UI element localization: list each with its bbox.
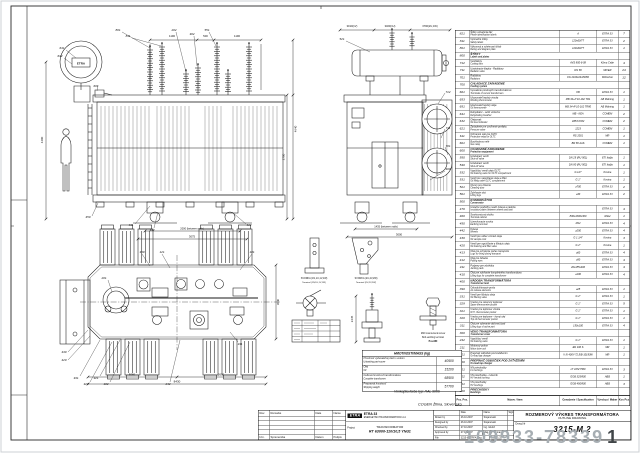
- part-desc: Otvory pre čistenieCleaning door: [469, 184, 559, 191]
- parts-row: 410Oká pre zdvíhanie kompletného transfo…: [456, 271, 630, 278]
- part-pos: 450: [456, 220, 470, 227]
- part-desc: Vypúšťací ventilOil draining valve: [469, 337, 559, 344]
- part-desc: Izolačné podložky medzi kolesá a nádobuI…: [469, 206, 559, 213]
- part-qty: 1: [619, 45, 630, 52]
- terminal-detail-1: [310, 238, 319, 268]
- part-qty: 4: [619, 257, 630, 264]
- drawing-label: 2445: [350, 315, 354, 322]
- parts-row: 211Motorový pohonMotor drive unitED 100 …: [456, 344, 630, 351]
- drawing-label: 3000: [396, 233, 403, 237]
- parts-section-row: 400NÁDOBA TRANSFORMÁTORATransformer tank: [456, 279, 630, 286]
- part-desc: Ventil pre odber vzoriek olejaOil sample…: [469, 235, 559, 242]
- drawing-label: 601: [93, 84, 98, 88]
- part-pos: 470: [456, 206, 470, 213]
- customer-wrap: COGEN Žilina, Slovensko: [418, 402, 498, 407]
- part-spec: ⌀700: [560, 184, 597, 191]
- drawing-label: 3075: [189, 235, 196, 239]
- terminal-detail-2: [352, 238, 378, 264]
- front-view: [60, 41, 285, 223]
- part-maker: ETRA 33: [597, 38, 619, 45]
- part-desc: VEKO TRANSFORMÁTORATransformer cover: [469, 330, 618, 337]
- part-spec: KB: [560, 89, 597, 96]
- part-spec: G 2": [560, 242, 597, 249]
- part-maker: COMEM: [597, 125, 619, 132]
- part-maker: ETRA 33: [597, 286, 619, 293]
- part-qty: 1: [619, 286, 630, 293]
- drawing-label: 711: [446, 126, 451, 130]
- part-pos: 641: [456, 111, 470, 118]
- drawing-label: 101: [249, 250, 254, 254]
- part-qty: 2: [619, 38, 630, 45]
- tank-cover-beam: [93, 95, 285, 102]
- parts-row: 470Izolačné podložky medzi kolesá a nádo…: [456, 206, 630, 213]
- part-qty: 1: [619, 176, 630, 183]
- drawing-label: 500: [203, 34, 208, 38]
- drawing-label: 329: [83, 382, 88, 386]
- conservator-plan: [60, 280, 90, 344]
- part-pos: 653: [456, 96, 470, 103]
- weight-value: 15200: [437, 366, 462, 374]
- human-figure: [61, 136, 71, 191]
- part-desc: Ventil pre vypúšťanie a filtráciu olejaO…: [469, 242, 559, 249]
- part-desc: Oká pre zdvíhanie kompletného transformá…: [469, 271, 559, 278]
- part-pos: 540: [456, 162, 470, 169]
- part-pos: 701: [456, 74, 470, 81]
- part-maker: ETRA 33: [597, 31, 619, 38]
- part-maker: ETRA 33: [597, 220, 619, 227]
- part-desc: VN priechodkyHV bushings: [469, 381, 559, 388]
- drawing-label: 1435 (between rails): [374, 225, 398, 229]
- company-subname: ENERGETSKI TRANSFORMATORJI d.d.: [364, 416, 406, 418]
- part-pos: 390: [456, 286, 470, 293]
- part-spec: ⌀250: [560, 228, 597, 235]
- part-qty: 1: [619, 155, 630, 162]
- part-desc: Odvzdušňovacie prvkyAir release elements: [469, 286, 559, 293]
- drawing-label: M20 countersunk screw: [421, 332, 446, 335]
- drawing-label: Pos.680: [429, 341, 438, 343]
- part-maker: ETRA 33: [597, 322, 619, 329]
- part-desc: Výstražné štítkySafety labels: [469, 38, 559, 45]
- header-qty: Kos Pcs: [619, 396, 630, 406]
- part-desc: Motorový pohonMotor drive unit: [469, 344, 559, 351]
- part-qty: 3: [619, 366, 630, 373]
- part-desc: KolesáWheels: [469, 228, 559, 235]
- earthing-bolt-detail: [426, 298, 440, 306]
- part-qty: [619, 52, 630, 59]
- part-pos: 400: [456, 279, 470, 286]
- conservator-tank: [352, 50, 442, 76]
- part-spec: RS 2001: [560, 133, 597, 140]
- part-desc: Výkonový a schémový štítokRating and dia…: [469, 45, 559, 52]
- part-spec: G 1": [560, 176, 597, 183]
- drawing-label: 701: [445, 144, 450, 148]
- part-qty: 4: [619, 228, 630, 235]
- drawing-label: 311: [238, 342, 243, 346]
- drawing-label: 302: [189, 32, 194, 36]
- part-pos: 651: [456, 103, 470, 110]
- part-qty: 1: [619, 96, 630, 103]
- drawing-label: 321: [93, 376, 98, 380]
- part-pos: 410: [456, 271, 470, 278]
- parts-row: 540Uzatvárací ventilShut-off valveDN 80 …: [456, 162, 630, 169]
- part-pos: 521: [456, 184, 470, 191]
- part-pos: 242: [456, 337, 470, 344]
- drawing-label: Terminal (2U,2V,2W): [356, 281, 376, 284]
- part-spec: ⌀100: [560, 271, 597, 278]
- parts-row: 412Oká pre ťahaniePulling eyes⌀50ETRA 33…: [456, 257, 630, 264]
- drawing-label: 1190: [169, 34, 175, 38]
- part-qty: 1: [619, 308, 630, 315]
- drawing-label: 3190(1V): [347, 24, 358, 28]
- drawing-label: 712: [445, 90, 450, 94]
- part-spec: [560, 206, 597, 213]
- parts-list-table: 821Štítky označenia fázPhase identificat…: [455, 30, 631, 406]
- part-maker: MR: [597, 133, 619, 140]
- leader-lines: [64, 32, 448, 382]
- header-maker: Výrobca / Maker: [597, 396, 619, 406]
- part-spec: G 1": [560, 337, 597, 344]
- part-qty: 7: [619, 31, 630, 38]
- part-qty: 12: [619, 74, 630, 81]
- parts-row: 442KolesáWheels⌀250ETRA 334: [456, 228, 630, 235]
- weight-label: Celková hmotnosť transformátoraComplete …: [363, 374, 437, 382]
- drawing-label: 420: [61, 358, 66, 362]
- parts-row: 311Oká pre vyberanie aktívnej častiLifti…: [456, 322, 630, 329]
- parts-row: 711Uzatváracie klapky - RadiátoryRadiato…: [456, 67, 630, 74]
- weight-label: Hmotnosť vyberateľnej časti s vekomUntan…: [363, 357, 437, 365]
- parts-row: 811Výstražné štítkySafety labels120x60/7…: [456, 38, 630, 45]
- part-pos: 501: [456, 191, 470, 198]
- part-spec: 800x1000x300: [560, 213, 597, 220]
- paint-note-wrap: Vonkajšia farba typ: RAL 9006: [394, 390, 484, 394]
- part-qty: [619, 82, 630, 89]
- part-pos: 320: [456, 315, 470, 322]
- part-maker: Wiktscher: [597, 74, 619, 81]
- part-desc: ŠTÍTKYLabels and plates: [469, 52, 618, 59]
- part-spec: BR 80 AAS: [560, 140, 597, 147]
- part-pos: 801: [456, 45, 470, 52]
- drawing-label: 632: [57, 54, 62, 58]
- part-spec: G 1": [560, 308, 597, 315]
- part-desc: Dehydrátor - sušič vzduchuDehydrating br…: [469, 111, 559, 118]
- part-pos: 420: [456, 242, 470, 249]
- part-qty: 1: [619, 103, 630, 110]
- part-qty: 2: [619, 184, 630, 191]
- part-spec: ED 100 S: [560, 344, 597, 351]
- part-desc: VentilátoryCooling fans: [469, 60, 559, 67]
- part-qty: 2: [619, 111, 630, 118]
- part-qty: 2: [619, 118, 630, 125]
- part-desc: Vrecko pre rezervný teplomerSpare thermo…: [469, 300, 559, 307]
- drawing-label: 2000 (between rails): [180, 227, 204, 231]
- izm-col: Izm.: [259, 435, 270, 441]
- part-qty: [619, 147, 630, 154]
- part-spec: 20x185x400: [560, 264, 597, 271]
- drawing-label: SVORKA (1N,1U,1V,1W): [301, 277, 328, 280]
- drawing-label: ETRA: [77, 62, 86, 66]
- part-desc: Vyvedenie prúdových transformátorovTermi…: [469, 89, 559, 96]
- part-pos: 821: [456, 31, 470, 38]
- drawing-label: 121: [159, 250, 164, 254]
- part-pos: 460: [456, 213, 470, 220]
- part-qty: 4: [619, 206, 630, 213]
- part-spec: LB53 KOM: [560, 118, 597, 125]
- parts-row: 102VN priechodka - nulovníkHV neutral bu…: [456, 373, 630, 380]
- part-qty: 3: [619, 381, 630, 388]
- part-desc: Vrecko pre teplomer vinutiaW.Ti. thermom…: [469, 308, 559, 315]
- part-pos: 711: [456, 67, 470, 74]
- parts-row: 621Zariadenie pre uvoľnenie pretlakuPres…: [456, 125, 630, 132]
- ladder: [88, 104, 92, 195]
- part-qty: 24: [619, 67, 630, 74]
- part-maker: ETRA 33: [597, 337, 619, 344]
- drawing-label: 2700: [282, 153, 286, 160]
- parts-section-row: 600OCHRANNÉ ZARIADENIEProtection equipme…: [456, 147, 630, 154]
- parts-row: 641Dehydrátor - sušič vzduchuDehydrating…: [456, 111, 630, 118]
- weight-row: Hmotnosť vyberateľnej časti s vekomUntan…: [363, 357, 462, 366]
- part-qty: [619, 330, 630, 337]
- detail-views: [292, 238, 446, 342]
- part-spec: A: [560, 31, 597, 38]
- part-desc: Svorkovnicová skriňaTerminal cabinet: [469, 213, 559, 220]
- name-col: Name: [333, 411, 346, 417]
- part-pos: 700: [456, 82, 470, 89]
- part-desc: OlejoznakOil level indicator: [469, 118, 559, 125]
- drawing-label: 430: [61, 350, 66, 354]
- part-spec: MB - KEA: [560, 111, 597, 118]
- weight-label: OlejOil: [363, 366, 437, 374]
- project-label: Project: [347, 427, 355, 430]
- remarks-col: Remarks: [270, 411, 315, 417]
- part-spec: G 1/2": [560, 169, 597, 176]
- parts-row: 632OlejoznakOil level indicatorLB53 KOMC…: [456, 118, 630, 125]
- parts-row: 321Vrecko pre teplomer vinutiaW.Ti. ther…: [456, 308, 630, 315]
- part-pos: 430: [456, 235, 470, 242]
- part-maker: Rittal: [597, 213, 619, 220]
- drawing-label: 4640: [294, 125, 298, 132]
- part-qty: 4: [619, 264, 630, 271]
- part-maker: ETRA 33: [597, 249, 619, 256]
- parts-row: 801Výkonový a schémový štítokRating and …: [456, 45, 630, 52]
- part-spec: DN 80: [560, 67, 597, 74]
- part-desc: RadiátoryRadiators: [469, 74, 559, 81]
- drawing-label: SVORKA (2U,2V,2W): [355, 277, 378, 280]
- part-maker: ETRA 33: [597, 45, 619, 52]
- part-desc: Podpery pre zdvihákyJacking pads: [469, 264, 559, 271]
- drawing-label: 521: [339, 37, 344, 41]
- part-qty: 1: [619, 169, 630, 176]
- part-qty: 1: [619, 373, 630, 380]
- drawing-label: 450: [85, 215, 90, 219]
- part-pos: 413: [456, 249, 470, 256]
- part-pos: 712: [456, 60, 470, 67]
- drawing-label: 201: [100, 276, 106, 280]
- parts-row: 242Vypúšťací ventilOil draining valveG 1…: [456, 337, 630, 344]
- parts-row: 331Ventil pre filtráciu olejaOil filteri…: [456, 293, 630, 300]
- part-spec: G 2": [560, 293, 597, 300]
- part-desc: Ukazovateľ teploty olejaOil thermometer: [469, 103, 559, 110]
- part-spec: 1223: [560, 125, 597, 132]
- listing-id-watermark: 109933-783391: [464, 427, 619, 448]
- drawing-label: 811: [126, 34, 131, 38]
- part-qty: 4: [619, 249, 630, 256]
- drawing-label: 202: [170, 28, 176, 32]
- drawing-label: 460: [445, 167, 450, 171]
- part-spec: G 1": [560, 315, 597, 322]
- part-maker: ETRA 33: [597, 293, 619, 300]
- drawing-label: 551: [204, 28, 209, 32]
- weight-value: 68500: [437, 374, 462, 382]
- part-pos: 311: [456, 322, 470, 329]
- part-desc: PREPÍNAČ ODBOČIEK POD ZAŤAŽENÍMOn-load t…: [469, 359, 618, 366]
- part-maker: Kovina: [597, 242, 619, 249]
- part-desc: Oká pre vyberanie aktívnej častiLifting …: [469, 322, 559, 329]
- part-pos: 331: [456, 293, 470, 300]
- parts-row: 821Štítky označenia fázPhase identificat…: [456, 31, 630, 38]
- parts-row: 329Vrecko pre rezervný teplomerSpare the…: [456, 300, 630, 307]
- part-qty: 1: [619, 344, 630, 351]
- part-desc: Uzatvárací ventilShut-off valve: [469, 162, 559, 169]
- part-desc: Buchholzovo reléGas relay: [469, 140, 559, 147]
- part-maker: ETRA 33: [597, 264, 619, 271]
- parts-row: 320Vrecko pre teplomer - horný olejTop o…: [456, 315, 630, 322]
- part-spec: MB 34+P 10-162 TR80: [560, 103, 597, 110]
- part-qty: [619, 279, 630, 286]
- parts-row: 430Ventil pre odber vzoriek olejaOil sam…: [456, 235, 630, 242]
- part-qty: 1: [619, 133, 630, 140]
- part-qty: 2: [619, 191, 630, 198]
- part-pos: 800: [456, 52, 470, 59]
- part-maker: AB Mätning: [597, 96, 619, 103]
- customer-name: COGEN Žilina, Slovensko: [418, 402, 498, 407]
- parts-row: 653Ukazovateľ teploty vinutiaWinding the…: [456, 96, 630, 103]
- parts-row: 201Prepínač odbočiek pod zaťaženímOn-loa…: [456, 352, 630, 359]
- part-pos: 632: [456, 118, 470, 125]
- part-maker: MR: [597, 344, 619, 351]
- part-desc: Ukazovateľ teploty vinutiaWinding thermo…: [469, 96, 559, 103]
- parts-row: 390Odvzdušňovacie prvkyAir release eleme…: [456, 286, 630, 293]
- part-spec: FG 2100x24x80/80: [560, 74, 597, 81]
- part-desc: Štítky označenia fázPhase identification…: [469, 31, 559, 38]
- parts-section-row: 700CHLADIACE ZARIADENIECooling system: [456, 82, 630, 89]
- drawing-label: 390: [139, 250, 144, 254]
- part-pos: 601: [456, 140, 470, 147]
- part-desc: NÁDOBA TRANSFORMÁTORATransformer tank: [469, 279, 618, 286]
- part-spec: ⌀30: [560, 191, 597, 198]
- watermark-id: 109933-78339: [464, 427, 604, 447]
- part-qty: 4: [619, 271, 630, 278]
- part-pos: 811: [456, 38, 470, 45]
- parts-row: 413Oká pre uchytenie počas transportuLug…: [456, 249, 630, 256]
- part-maker: AB Mätning: [597, 103, 619, 110]
- drawing-label: 4400: [40, 136, 44, 143]
- part-maker: Klima Celje: [597, 60, 619, 67]
- part-desc: OCHRANNÉ ZARIADENIEProtection equipment: [469, 147, 618, 154]
- podpis-col: Podpis: [333, 435, 346, 441]
- part-pos: 532: [456, 169, 470, 176]
- parts-row: 532Vypúšťací ventil oleja OLTCOil draini…: [456, 169, 630, 176]
- part-pos: 321: [456, 308, 470, 315]
- part-maker: ETRA 33: [597, 89, 619, 96]
- parts-row: 420Ventil pre vypúšťanie a filtráciu ole…: [456, 242, 630, 249]
- part-spec: GOB 450/800: [560, 381, 597, 388]
- generated-geometry: [45, 29, 454, 386]
- drawing-label: 411: [129, 223, 134, 227]
- drawing-number-label: Drwg.Nr: [515, 423, 525, 426]
- drawing-label: 2670: [218, 373, 225, 377]
- drawing-label: 412: [246, 223, 251, 227]
- part-qty: [619, 359, 630, 366]
- sprememba-col: Sprememba: [270, 435, 315, 441]
- part-maker: ETI Italija: [597, 155, 619, 162]
- part-qty: [619, 388, 630, 395]
- part-desc: Ventil pre filtráciu olejaOil filtering …: [469, 293, 559, 300]
- part-spec: ⌀25: [560, 286, 597, 293]
- parts-row: 701RadiátoryRadiatorsFG 2100x24x80/80Wik…: [456, 74, 630, 81]
- part-maker: ETI Italija: [597, 162, 619, 169]
- part-qty: 1: [619, 213, 630, 220]
- part-pos: 531: [456, 176, 470, 183]
- part-desc: Ventil pre napúšťanie oleja a filterOil …: [469, 176, 559, 183]
- wheel: [150, 212, 160, 222]
- drawing-label: 3790(2U,1W): [422, 24, 438, 28]
- part-maker: ABB: [597, 373, 619, 380]
- part-pos: 621: [456, 125, 470, 132]
- part-desc: Uzatváracie klapky - RadiátoryRadiator v…: [469, 67, 559, 74]
- part-maker: ETRA 33: [597, 184, 619, 191]
- parts-row: 460Svorkovnicová skriňaTerminal cabinet8…: [456, 213, 630, 220]
- parts-row: 550Uzatvárací ventilShut-off valveDN 25 …: [456, 155, 630, 162]
- drawing-label: 442: [149, 228, 154, 232]
- part-maker: MR: [597, 352, 619, 359]
- part-spec: ⌀50: [560, 257, 597, 264]
- parts-row: 531Ventil pre napúšťanie oleja a filterO…: [456, 176, 630, 183]
- part-maker: ETRA 33: [597, 271, 619, 278]
- part-spec: DN 25 (RU 501): [560, 155, 597, 162]
- bushing-detail: [366, 310, 378, 322]
- part-desc: Zariadenie pre uvoľnenie pretlakuPressur…: [469, 125, 559, 132]
- part-desc: Vrecko pre teplomer - horný olejTop oil …: [469, 315, 559, 322]
- human-head: [63, 129, 69, 135]
- weight-row: Celková hmotnosť transformátoraComplete …: [363, 374, 462, 383]
- header-spec: Označenie / Specification: [560, 396, 597, 406]
- part-pos: 661: [456, 89, 470, 96]
- drawing-labels: 119050011904640270044002000 (between rai…: [40, 24, 451, 386]
- part-desc: Zdvíhacie okáLifting lugs: [469, 191, 559, 198]
- part-maker: COMEM: [597, 111, 619, 118]
- drawing-label: 5060: [129, 373, 136, 377]
- parts-row: 611Ochranné relé pre OLTCProtective rela…: [456, 133, 630, 140]
- part-desc: NN priechodkyLV bushings: [469, 366, 559, 373]
- drawing-label: 641: [59, 46, 64, 50]
- drawing-label: 801: [115, 28, 120, 32]
- part-desc: Oká pre ťahaniePulling eyes: [469, 257, 559, 264]
- part-pos: 442: [456, 228, 470, 235]
- part-desc: PRIECHODKYBushings: [469, 388, 618, 395]
- part-spec: V III 400Y-72,5/B-10193W: [560, 352, 597, 359]
- part-maker: Kovina: [597, 235, 619, 242]
- part-qty: [619, 198, 630, 205]
- part-spec: 120x60/77: [560, 45, 597, 52]
- part-spec: ⌀60: [560, 249, 597, 256]
- watermark-suffix: 1: [607, 427, 619, 447]
- plan-view: [60, 255, 280, 350]
- part-maker: Kovina: [597, 169, 619, 176]
- company-logo: ETRA: [348, 414, 363, 419]
- part-desc: Uzatvárací ventilShut-off valve: [469, 155, 559, 162]
- side-view: [340, 50, 452, 223]
- drawing-label: Terminal (1N,1U,1V,1W): [302, 281, 326, 284]
